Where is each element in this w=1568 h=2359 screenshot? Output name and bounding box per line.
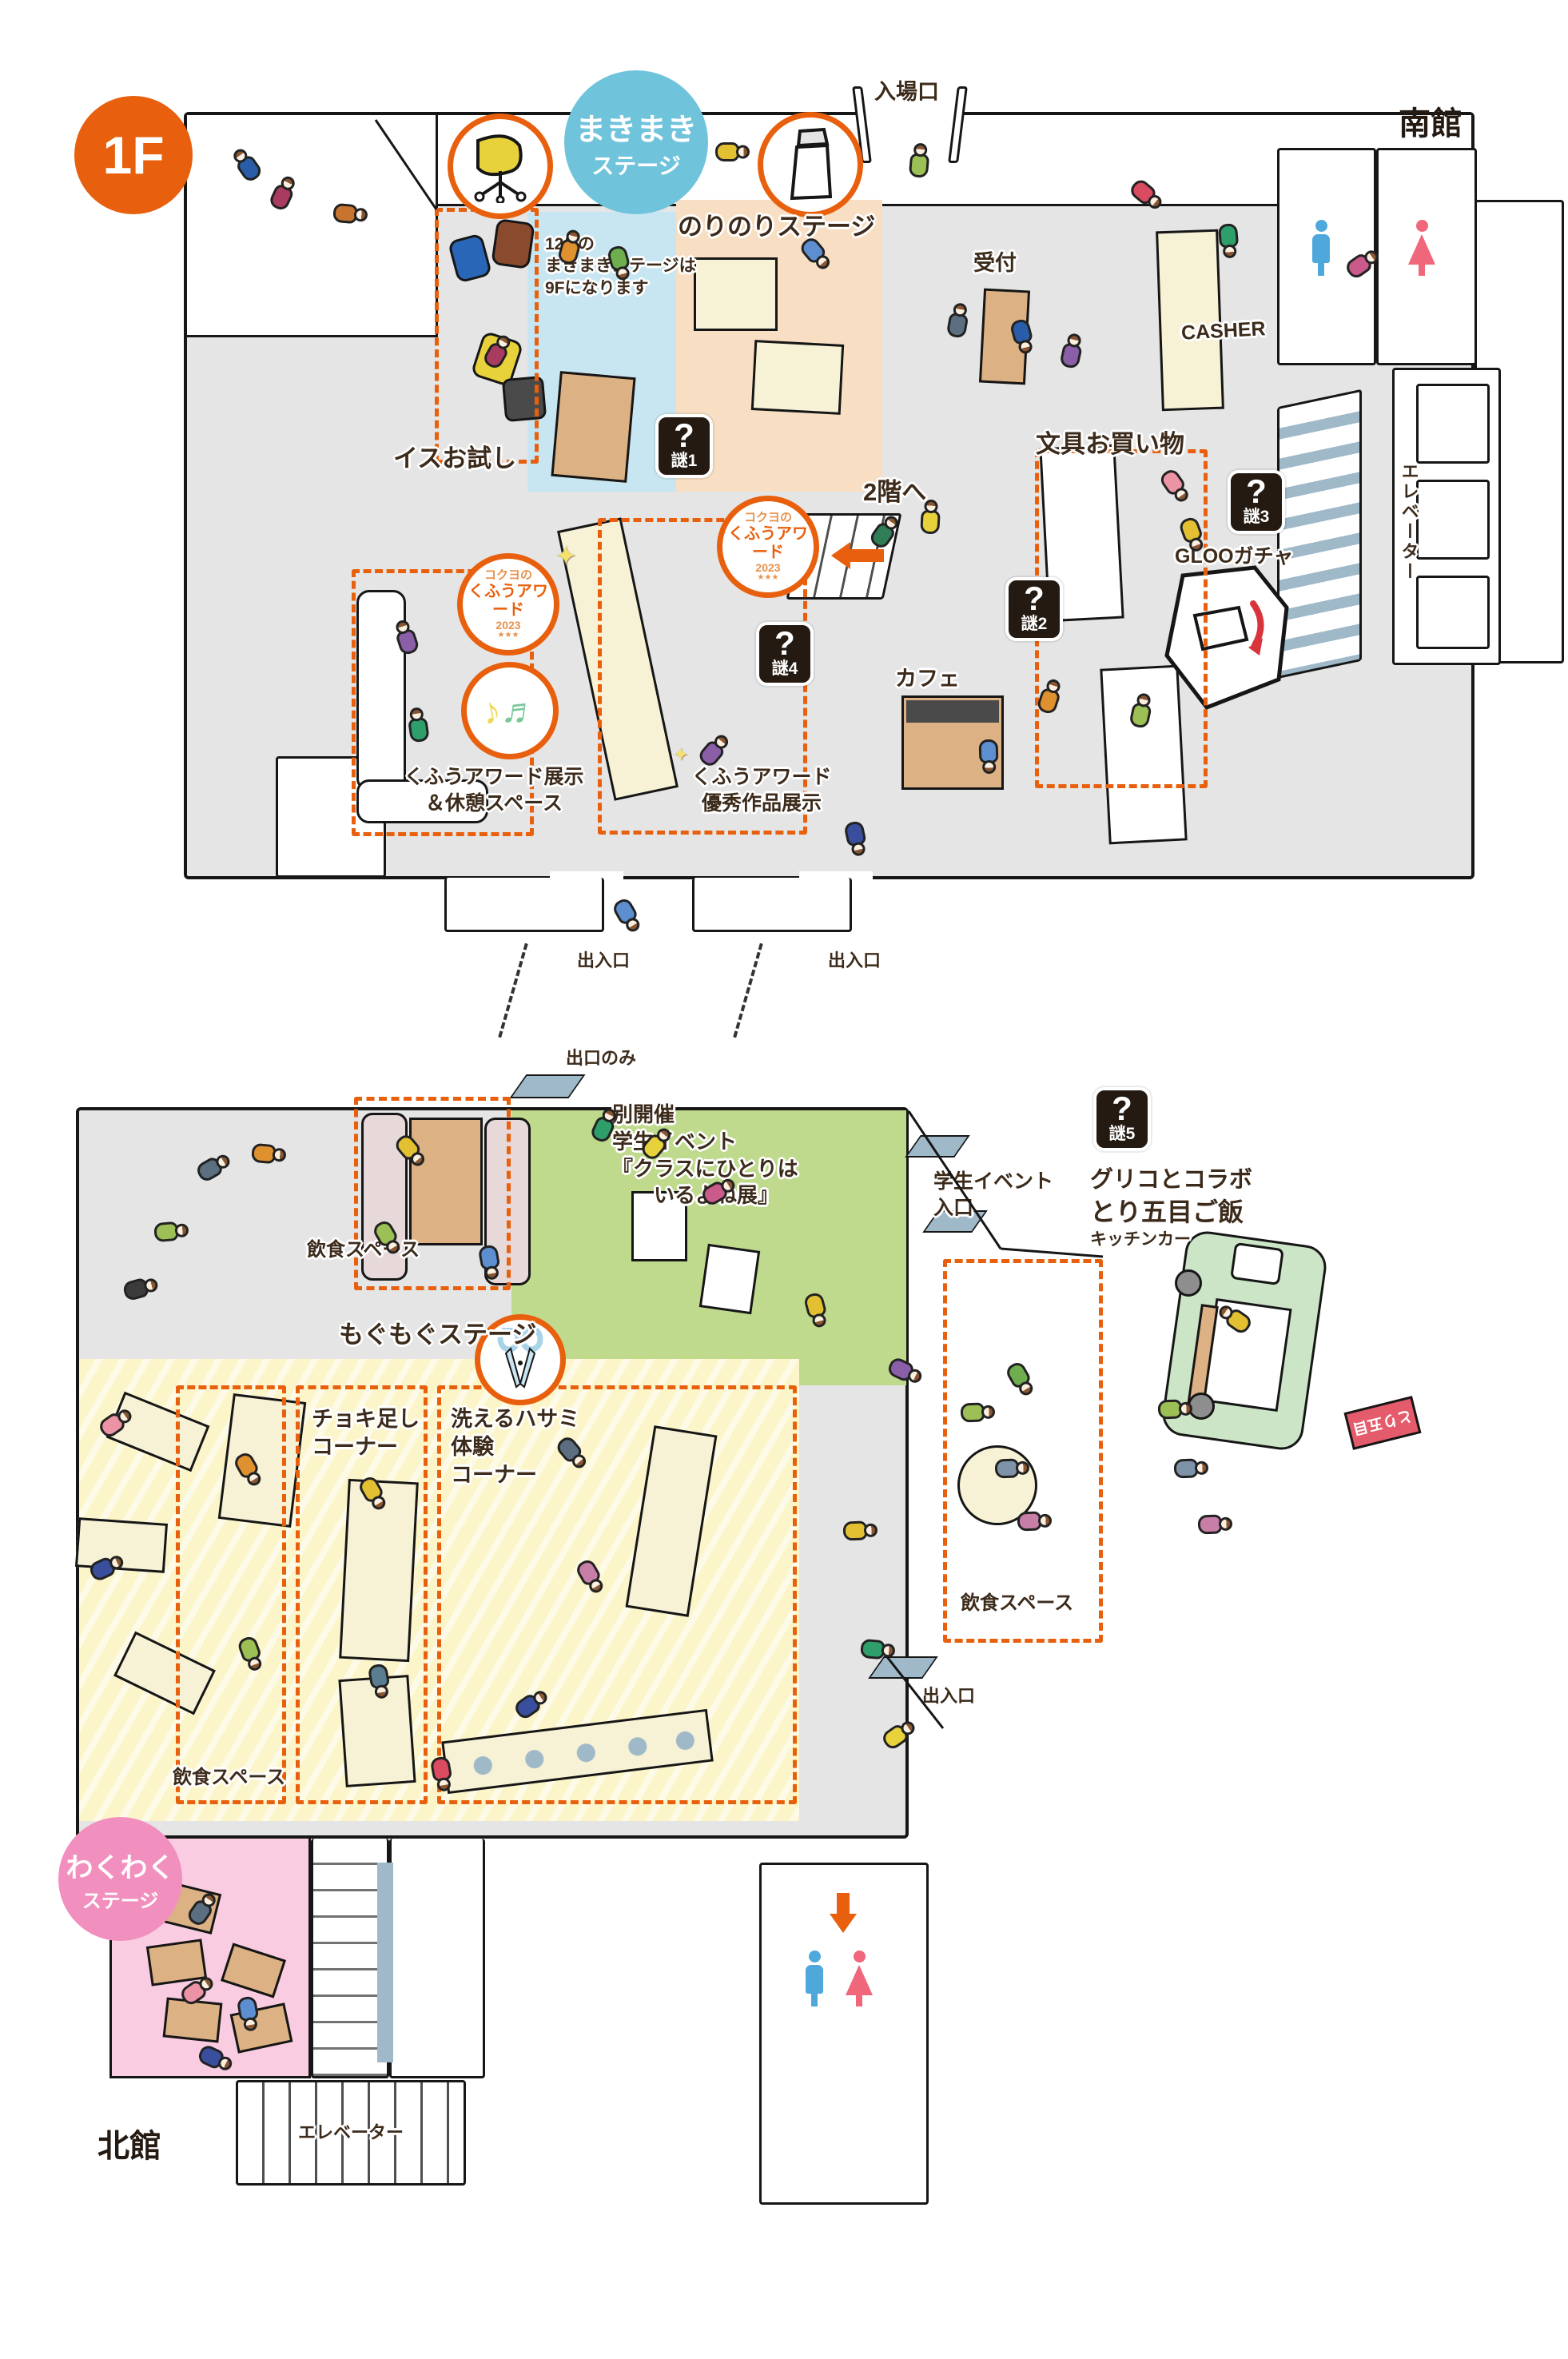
north-building-label: 北館	[98, 2120, 161, 2166]
music-notes-circle: ♪ ♬	[461, 662, 559, 759]
south-exit-right-label: 出入口	[828, 950, 881, 973]
hasami-line1: 洗えるハサミ	[451, 1405, 587, 1433]
sparkle-icon: ✦	[673, 743, 689, 767]
person	[1198, 1514, 1223, 1534]
mogumogu-stage-label: もぐもぐステージ	[339, 1319, 536, 1351]
person	[961, 1402, 985, 1422]
award-rest-line2: ＆休憩スペース	[398, 791, 590, 817]
choki-line2: コーナー	[312, 1433, 432, 1461]
person	[843, 1520, 868, 1540]
person	[251, 1143, 277, 1165]
question-icon: ?	[1231, 475, 1282, 508]
stairs-accent	[377, 1863, 393, 2062]
award-title: くふうアワード	[722, 525, 814, 562]
choki-corner-label: チョキ足し コーナー	[312, 1405, 432, 1461]
student-entrance-line2: 入口	[933, 1195, 1061, 1221]
award-stars: ★★★	[758, 574, 779, 582]
south-topleft-backstage	[187, 115, 438, 337]
dining-area-left	[176, 1385, 286, 1804]
norinori-table	[751, 340, 844, 415]
stage-box	[146, 1939, 207, 1986]
wakuwaku-title: わくわく	[66, 1846, 175, 1885]
floor-map-1f: エレベーター 1F	[0, 0, 1568, 2359]
person	[995, 1458, 1020, 1478]
nazo3-badge: ? 謎3	[1228, 470, 1285, 534]
award-brand: コクヨの	[484, 569, 532, 583]
kitchen-car-flag-text: とり五目	[1351, 1405, 1415, 1441]
cafe-label: カフェ	[895, 665, 960, 693]
award-rest-line1: くふうアワード展示	[398, 764, 590, 791]
wakuwaku-sub: ステージ	[82, 1885, 159, 1913]
makimaki-table	[551, 371, 635, 483]
award-year: 2023	[755, 562, 780, 574]
nazo1-label: 謎1	[659, 452, 710, 469]
award-best-label: くふうアワード 優秀作品展示	[670, 764, 854, 816]
question-icon: ?	[759, 627, 810, 660]
makimaki-stage-title: まきまき	[575, 105, 697, 149]
wakuwaku-stage-badge: わくわく ステージ	[58, 1817, 182, 1941]
to-2f-label: 2階へ	[863, 476, 926, 508]
nazo1-badge: ? 謎1	[655, 414, 713, 478]
choki-line1: チョキ足し	[312, 1405, 432, 1433]
kitchen-car-wheel	[1175, 1269, 1202, 1297]
map-connector-line	[498, 943, 527, 1038]
womens-toilet-icon	[1408, 220, 1435, 276]
south-exit-left-label: 出入口	[577, 950, 630, 973]
nazo4-label: 謎4	[759, 660, 810, 677]
makimaki-stage-sub: ステージ	[591, 149, 680, 181]
dining-left-label: 飲食スペース	[173, 1765, 285, 1790]
event-panel	[699, 1244, 760, 1314]
sparkle-icon: ✦	[555, 540, 578, 572]
south-porch	[444, 878, 604, 932]
award-year: 2023	[495, 620, 520, 632]
question-icon: ?	[659, 419, 710, 452]
student-entrance-line1: 学生イベント	[933, 1169, 1061, 1195]
student-event-doormark	[905, 1135, 970, 1158]
award-rest-label: くふうアワード展示 ＆休憩スペース	[398, 764, 590, 816]
award-2023-badge: コクヨの くふうアワード 2023 ★★★	[457, 553, 559, 655]
north-exit-label: 出入口	[922, 1685, 975, 1708]
map-connector-line	[733, 943, 762, 1038]
person	[1218, 223, 1240, 249]
chair-icon	[467, 130, 534, 203]
north-elevator-label: エレベーター	[298, 2122, 404, 2145]
person	[1017, 1511, 1042, 1531]
person	[715, 142, 739, 161]
person	[332, 203, 358, 225]
nazo3-label: 謎3	[1231, 508, 1282, 525]
award-2023-badge: コクヨの くふうアワード 2023 ★★★	[717, 496, 819, 598]
south-porch	[692, 878, 852, 932]
dining-right-label: 飲食スペース	[961, 1591, 1073, 1616]
question-icon: ?	[1096, 1092, 1148, 1126]
north-elevator-hall: エレベーター	[236, 2080, 466, 2186]
person	[153, 1221, 179, 1243]
award-title: くふうアワード	[463, 583, 554, 620]
chair-icon-circle	[448, 114, 553, 219]
floor-1f-label: 1F	[102, 125, 164, 185]
glico-line1: グリコとコラボ	[1090, 1166, 1298, 1196]
nazo2-badge: ? 謎2	[1005, 577, 1063, 641]
kitchen-car-flag: とり五目	[1344, 1396, 1422, 1450]
nazo4-badge: ? 謎4	[756, 622, 814, 686]
award-brand: コクヨの	[744, 512, 792, 525]
person	[1174, 1458, 1199, 1478]
casher-label: CASHER	[1180, 316, 1266, 346]
award-stars: ★★★	[498, 632, 519, 640]
glico-label: グリコとコラボ とり五目ご飯 キッチンカー	[1090, 1166, 1298, 1251]
entrance-gap	[862, 109, 957, 120]
student-event-line3: 『クラスにひとりは	[612, 1156, 876, 1183]
north-stairs-landing	[389, 1839, 485, 2078]
music-note-icon: ♬	[499, 687, 541, 735]
dining-top-label: 飲食スペース	[307, 1237, 420, 1262]
chair-trial-area	[435, 208, 539, 464]
elevator-door	[1416, 480, 1490, 560]
toilet-down-arrow-icon	[830, 1893, 857, 1935]
nazo5-badge: ? 謎5	[1093, 1087, 1151, 1151]
glico-line2: とり五目ご飯	[1090, 1196, 1298, 1229]
womens-toilet-icon	[846, 1951, 873, 2006]
hasami-line3: コーナー	[451, 1461, 587, 1489]
exit-only-label: 出口のみ	[566, 1047, 636, 1070]
south-elevator-label: エレベーター	[1397, 462, 1420, 582]
person	[920, 509, 941, 534]
elevator-door	[1416, 384, 1490, 464]
student-event-line4: いるよね展』	[612, 1182, 876, 1209]
dining-area-right	[943, 1259, 1103, 1643]
person	[611, 896, 639, 926]
student-event-line1: 別開催	[612, 1102, 876, 1129]
person	[1158, 1399, 1183, 1419]
chair-trial-label: イスお試し	[393, 443, 516, 475]
entrance-label: 入場口	[874, 78, 939, 106]
nazo2-label: 謎2	[1009, 616, 1060, 632]
makimaki-notice-line3: 9Fになります	[545, 277, 745, 299]
question-icon: ?	[1009, 582, 1060, 616]
student-event-entrance-label: 学生イベント 入口	[933, 1169, 1061, 1221]
makimaki-stage-badge: まきまき ステージ	[564, 70, 708, 214]
glico-line3: キッチンカー	[1090, 1229, 1298, 1250]
person	[978, 739, 998, 764]
stationery-label: 文具お買い物	[1036, 428, 1184, 460]
mens-toilet-icon	[806, 1951, 823, 2006]
person	[860, 1639, 885, 1660]
south-building-label: 南館	[1399, 98, 1463, 144]
mens-toilet-icon	[1312, 220, 1330, 276]
elevator-door	[1416, 576, 1490, 649]
reception-label: 受付	[973, 249, 1017, 277]
award-best-line2: 優秀作品展示	[670, 791, 854, 817]
award-best-line1: くふうアワード	[670, 764, 854, 791]
cafe-counter-top	[906, 700, 999, 723]
floor-1f-badge: 1F	[74, 96, 193, 214]
nazo5-label: 謎5	[1096, 1126, 1148, 1142]
glue-icon-circle	[758, 112, 863, 217]
exit-only-doormark	[509, 1074, 585, 1098]
glue-stick-icon	[782, 126, 838, 203]
